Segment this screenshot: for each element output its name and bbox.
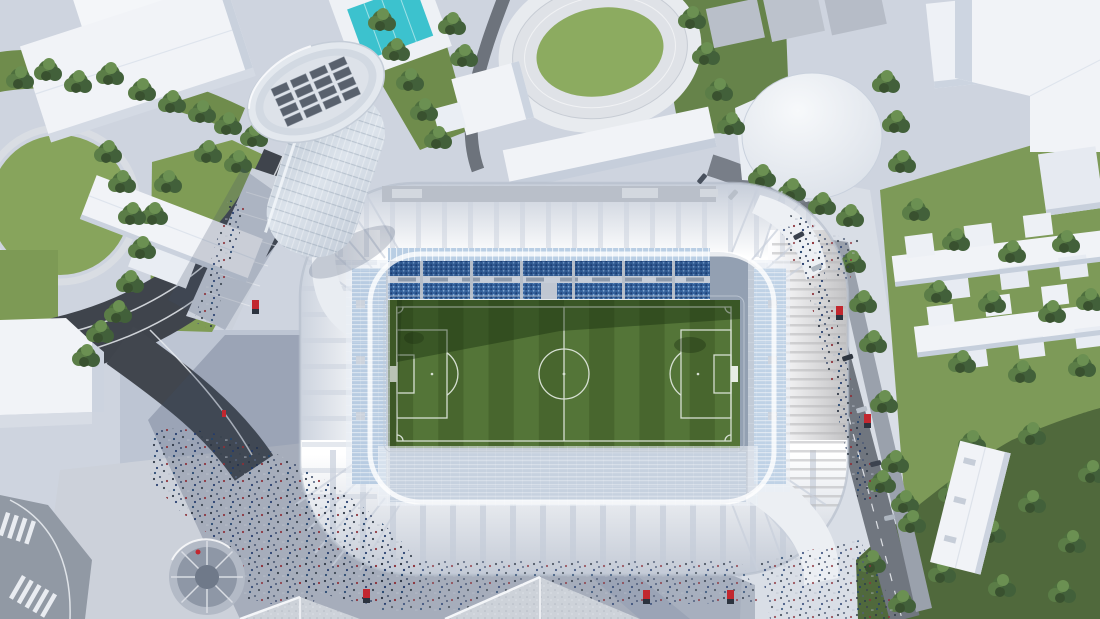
ramp-red-marker xyxy=(196,550,201,555)
red-flag xyxy=(222,410,226,417)
pitch xyxy=(388,300,740,448)
north-service-roof xyxy=(382,186,716,202)
building-right-edge xyxy=(1038,146,1100,215)
aerial-rendering xyxy=(0,0,1100,619)
kiosk-red xyxy=(836,306,843,315)
kiosk-red xyxy=(363,589,370,598)
spiral-ramp xyxy=(169,539,245,615)
scene-canvas xyxy=(0,0,1100,619)
kiosk-red xyxy=(643,590,650,599)
kiosk-red xyxy=(727,590,734,599)
players-tunnel xyxy=(541,283,557,300)
pitch-stripe xyxy=(690,300,715,448)
kiosk-red xyxy=(252,300,259,309)
kiosk-red xyxy=(864,414,871,423)
goal-east xyxy=(731,366,738,382)
